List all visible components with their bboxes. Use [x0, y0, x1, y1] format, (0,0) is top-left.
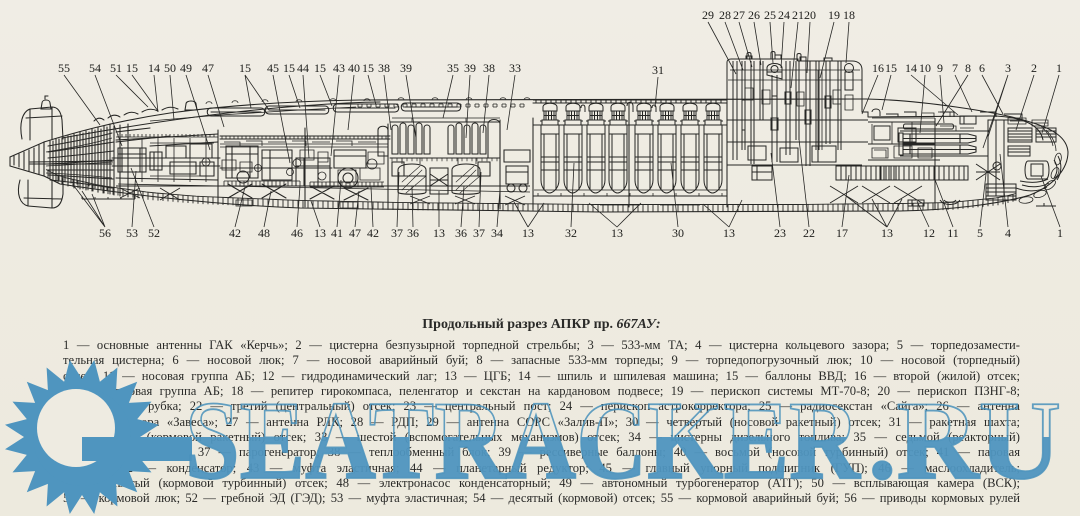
svg-text:41: 41	[331, 226, 343, 240]
svg-text:39: 39	[464, 61, 476, 75]
svg-text:28: 28	[719, 8, 731, 22]
svg-text:30: 30	[672, 226, 684, 240]
svg-text:51: 51	[110, 61, 122, 75]
svg-text:53: 53	[126, 226, 138, 240]
svg-text:13: 13	[314, 226, 326, 240]
svg-text:25: 25	[764, 8, 776, 22]
svg-text:47: 47	[202, 61, 214, 75]
svg-text:15: 15	[283, 61, 295, 75]
svg-text:47: 47	[349, 226, 361, 240]
svg-text:55: 55	[58, 61, 70, 75]
svg-text:2: 2	[1031, 61, 1037, 75]
svg-text:13: 13	[433, 226, 445, 240]
svg-text:48: 48	[258, 226, 270, 240]
svg-text:45: 45	[267, 61, 279, 75]
svg-text:12: 12	[923, 226, 935, 240]
svg-text:34: 34	[491, 226, 503, 240]
svg-text:15: 15	[126, 61, 138, 75]
svg-text:13: 13	[881, 226, 893, 240]
svg-text:31: 31	[652, 63, 664, 77]
svg-text:14: 14	[148, 61, 160, 75]
svg-text:5: 5	[977, 226, 983, 240]
svg-text:1: 1	[1057, 226, 1063, 240]
svg-text:36: 36	[455, 226, 467, 240]
svg-text:13: 13	[611, 226, 623, 240]
svg-text:35: 35	[447, 61, 459, 75]
svg-text:23: 23	[774, 226, 786, 240]
svg-text:15: 15	[885, 61, 897, 75]
svg-text:6: 6	[979, 61, 985, 75]
svg-text:18: 18	[843, 8, 855, 22]
svg-text:44: 44	[297, 61, 309, 75]
svg-text:1: 1	[1056, 61, 1062, 75]
svg-text:50: 50	[164, 61, 176, 75]
svg-text:37: 37	[473, 226, 485, 240]
svg-text:14: 14	[905, 61, 917, 75]
svg-text:26: 26	[748, 8, 760, 22]
svg-text:10: 10	[919, 61, 931, 75]
svg-text:37: 37	[391, 226, 403, 240]
svg-text:54: 54	[89, 61, 101, 75]
svg-text:42: 42	[229, 226, 241, 240]
svg-text:38: 38	[378, 61, 390, 75]
svg-text:7: 7	[952, 61, 958, 75]
svg-text:24: 24	[778, 8, 790, 22]
svg-text:32: 32	[565, 226, 577, 240]
svg-text:27: 27	[733, 8, 745, 22]
svg-text:39: 39	[400, 61, 412, 75]
svg-text:42: 42	[367, 226, 379, 240]
svg-text:8: 8	[965, 61, 971, 75]
svg-text:15: 15	[362, 61, 374, 75]
svg-text:49: 49	[180, 61, 192, 75]
svg-text:21: 21	[792, 8, 804, 22]
svg-text:17: 17	[836, 226, 848, 240]
svg-text:56: 56	[99, 226, 111, 240]
svg-text:15: 15	[314, 61, 326, 75]
svg-text:3: 3	[1005, 61, 1011, 75]
svg-text:20: 20	[804, 8, 816, 22]
svg-text:4: 4	[1005, 226, 1011, 240]
svg-text:22: 22	[803, 226, 815, 240]
svg-text:40: 40	[348, 61, 360, 75]
svg-text:13: 13	[723, 226, 735, 240]
svg-text:9: 9	[937, 61, 943, 75]
svg-text:36: 36	[407, 226, 419, 240]
svg-text:19: 19	[828, 8, 840, 22]
svg-text:38: 38	[483, 61, 495, 75]
svg-text:11: 11	[947, 226, 959, 240]
svg-text:16: 16	[872, 61, 884, 75]
svg-text:43: 43	[333, 61, 345, 75]
svg-text:46: 46	[291, 226, 303, 240]
svg-text:15: 15	[239, 61, 251, 75]
svg-text:52: 52	[148, 226, 160, 240]
svg-text:33: 33	[509, 61, 521, 75]
svg-text:29: 29	[702, 8, 714, 22]
svg-text:13: 13	[522, 226, 534, 240]
